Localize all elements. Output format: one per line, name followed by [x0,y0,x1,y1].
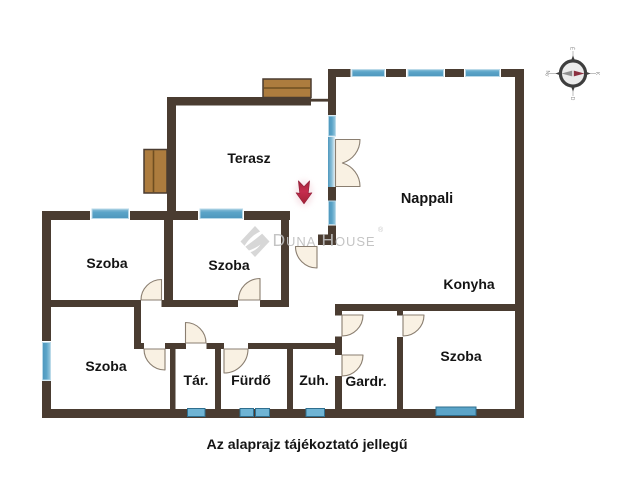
svg-text:Tár.: Tár. [184,372,209,388]
svg-text:Fürdő: Fürdő [231,372,271,388]
svg-text:®: ® [378,226,384,234]
svg-text:Terasz: Terasz [227,150,270,166]
svg-text:É: É [569,47,576,51]
svg-text:Szoba: Szoba [86,255,127,271]
svg-text:D: D [569,97,575,101]
svg-text:Szoba: Szoba [440,348,481,364]
svg-text:Zuh.: Zuh. [299,372,329,388]
svg-text:Szoba: Szoba [85,358,126,374]
svg-text:Szoba: Szoba [208,257,249,273]
svg-text:K: K [594,72,600,76]
svg-text:Konyha: Konyha [443,276,495,292]
svg-text:Gardr.: Gardr. [345,373,386,389]
svg-text:Az alaprajz tájékoztató jelleg: Az alaprajz tájékoztató jellegű [206,437,407,453]
svg-text:Nappali: Nappali [401,191,453,207]
svg-text:Ny: Ny [544,70,550,77]
